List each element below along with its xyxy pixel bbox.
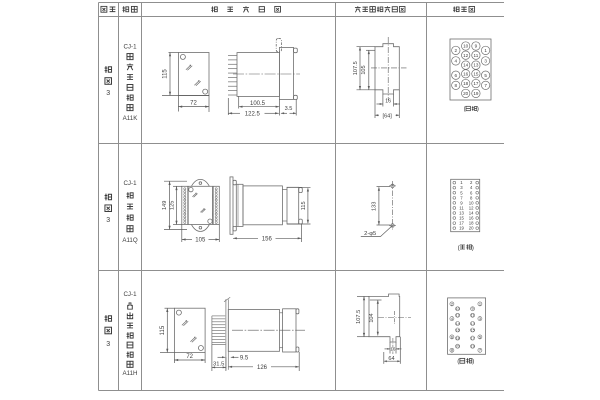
svg-text:3: 3 [106,341,110,348]
svg-text:19: 19 [473,91,479,96]
svg-text:13: 13 [470,321,474,326]
svg-text:11: 11 [471,313,475,318]
svg-text:3: 3 [484,59,487,64]
svg-text:156: 156 [262,236,273,242]
svg-text:115: 115 [160,325,166,335]
svg-text:149: 149 [162,201,168,210]
svg-text:A11Q: A11Q [122,237,138,244]
svg-text:20: 20 [463,91,469,96]
svg-text:20: 20 [469,226,474,231]
svg-text:8: 8 [455,83,458,88]
svg-text:125: 125 [169,201,175,210]
svg-text:64: 64 [388,356,394,362]
svg-text:19: 19 [459,226,464,231]
svg-text:107.5: 107.5 [353,61,359,75]
svg-text:11: 11 [474,53,479,58]
svg-text:12: 12 [463,53,469,58]
svg-text:18: 18 [455,336,459,341]
svg-text:15: 15 [473,71,479,76]
svg-text:10: 10 [463,44,469,49]
svg-text:19: 19 [470,344,474,349]
svg-text:13: 13 [473,63,479,68]
svg-text:31.5: 31.5 [213,361,224,367]
svg-text:115: 115 [301,201,307,210]
svg-text:[64]: [64] [383,113,393,119]
svg-text:105: 105 [195,238,206,244]
svg-text:104: 104 [369,313,375,322]
svg-text:2: 2 [451,301,453,306]
svg-text:9: 9 [475,44,478,49]
svg-text:14: 14 [463,63,469,68]
svg-text:3: 3 [106,90,110,97]
svg-text:(: ( [464,107,466,113]
svg-text:1: 1 [484,48,487,53]
svg-text:CJ-1: CJ-1 [123,291,137,298]
svg-text:16: 16 [463,71,469,76]
svg-text:7: 7 [479,348,481,353]
svg-text:6: 6 [455,73,458,78]
svg-text:A11K: A11K [123,115,139,122]
svg-text:72: 72 [186,354,193,360]
svg-text:12: 12 [455,313,459,318]
svg-text:A11H: A11H [122,370,137,377]
svg-text:CJ-1: CJ-1 [123,180,137,187]
svg-text:CJ-1: CJ-1 [123,43,137,50]
svg-text:15: 15 [470,327,474,332]
svg-text:133: 133 [372,202,378,211]
svg-text:107.5: 107.5 [356,310,362,324]
svg-text:6: 6 [451,334,453,339]
svg-text:3.5: 3.5 [285,106,293,112]
svg-text:1: 1 [479,301,481,306]
svg-text:17: 17 [470,336,474,341]
svg-text:5: 5 [479,334,481,339]
svg-text:3: 3 [106,217,110,224]
svg-text:16: 16 [455,327,459,332]
svg-text:5: 5 [484,73,487,78]
svg-text:105: 105 [361,65,367,74]
svg-text:17: 17 [473,81,479,86]
svg-text:2: 2 [455,48,458,53]
svg-text:4: 4 [455,59,458,64]
svg-text:115: 115 [163,69,169,79]
svg-text:): ) [472,358,474,365]
svg-text:): ) [477,107,479,113]
svg-text:2-φ5: 2-φ5 [364,231,376,237]
svg-text:126: 126 [257,365,268,371]
svg-text:18: 18 [463,81,469,86]
svg-text:122.5: 122.5 [245,111,261,117]
svg-text:100.5: 100.5 [250,101,266,107]
svg-text:3: 3 [479,316,481,321]
svg-text:7: 7 [484,83,487,88]
svg-text:): ) [472,244,474,251]
svg-text:72: 72 [190,101,197,107]
svg-text:9: 9 [472,306,474,311]
svg-text:16: 16 [385,98,391,104]
svg-text:8: 8 [451,348,453,353]
svg-text:9.5: 9.5 [240,355,249,361]
